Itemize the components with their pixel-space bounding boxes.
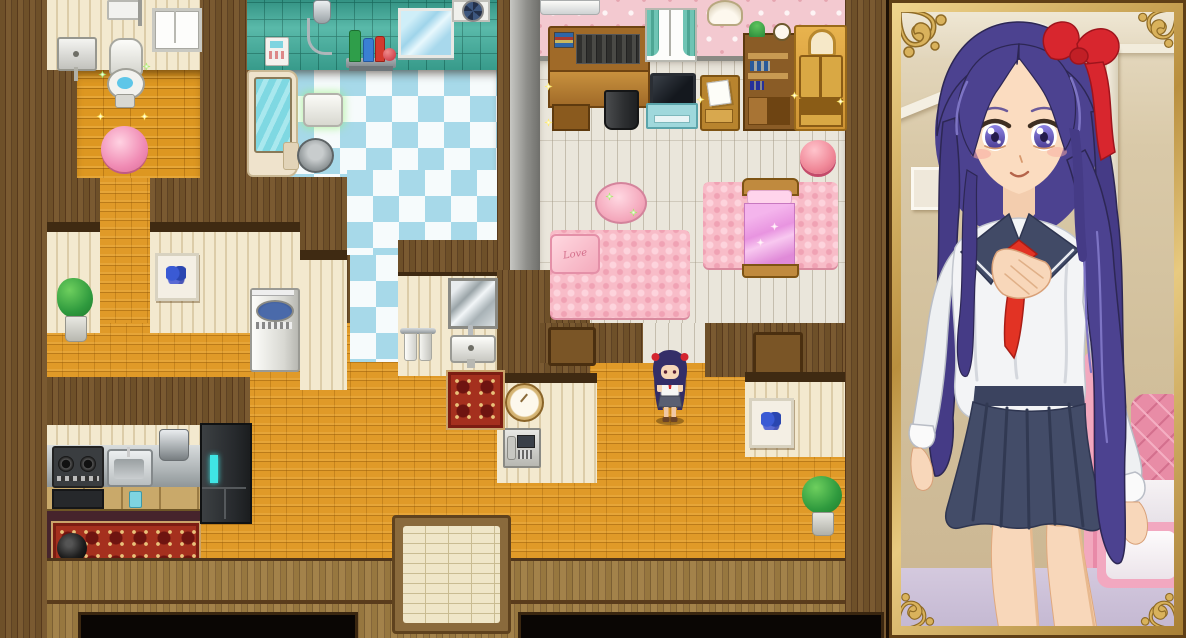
- window-mullion: [174, 11, 176, 43]
- blue-cup[interactable]: [129, 491, 142, 508]
- towel: [419, 333, 432, 361]
- doormat-weave: [403, 526, 500, 623]
- bookshelf[interactable]: [743, 33, 797, 131]
- curtain-left: [647, 10, 659, 56]
- hall-wall-column: [300, 250, 347, 390]
- small-red-rug: [448, 372, 503, 428]
- sparkle: [629, 208, 638, 217]
- potted-plant-left: [57, 278, 93, 342]
- game-screen: Love: [0, 0, 1186, 638]
- sink-leg: [74, 67, 78, 81]
- character-portrait-panel: [886, 0, 1186, 638]
- wall-sink[interactable]: [57, 37, 97, 71]
- shelf-plant: [749, 21, 765, 37]
- desk-hutch: [548, 26, 650, 74]
- small-wall-clock: [707, 0, 743, 26]
- sink-drain: [468, 345, 474, 351]
- sink-drain: [73, 51, 79, 57]
- stove-burner: [58, 456, 74, 472]
- bed-blanket: [744, 203, 795, 267]
- washer-lid: [256, 300, 294, 322]
- towel-rack: [400, 328, 438, 365]
- frame-ornament-top-right-icon: [1120, 12, 1174, 66]
- letter-desk[interactable]: [700, 75, 740, 131]
- fridge-divider: [224, 489, 226, 519]
- books-row: [576, 34, 640, 64]
- shelf-leg: [349, 66, 393, 71]
- bath-stool[interactable]: [303, 93, 343, 127]
- green-bottle[interactable]: [349, 30, 361, 62]
- butterfly-icon: [761, 412, 781, 430]
- love-pillow[interactable]: Love: [550, 234, 600, 274]
- bedroom-door-left[interactable]: [548, 327, 596, 366]
- intercom-keypad: [518, 450, 532, 459]
- faucet: [127, 447, 130, 457]
- bathroom-floor-strip: [350, 255, 400, 362]
- shower-hose: [307, 18, 332, 55]
- water-heater[interactable]: [107, 0, 141, 20]
- love-pillow-text: Love: [562, 247, 588, 261]
- entry-doormat: [392, 515, 511, 634]
- washroom-mirror: [448, 278, 498, 329]
- book-stack: [554, 32, 574, 48]
- bathtub[interactable]: [247, 70, 298, 177]
- portrait-scene: [901, 12, 1174, 626]
- gas-stove[interactable]: [52, 446, 104, 488]
- air-conditioner: [540, 0, 600, 15]
- washroom-north-wall: [398, 240, 497, 274]
- pink-pouf[interactable]: [800, 140, 836, 174]
- frame-ornament-bottom-right-icon: [1124, 576, 1174, 626]
- grey-partition: [510, 0, 540, 270]
- washer-top-edge: [252, 290, 294, 296]
- panel-buttons: [269, 51, 284, 59]
- hall-clock: [505, 383, 544, 422]
- intercom-handset: [507, 436, 516, 460]
- panel-screen: [270, 41, 283, 48]
- tv-shelf-slot: [654, 115, 690, 123]
- desk-drawer: [705, 109, 733, 123]
- intercom-phone[interactable]: [503, 428, 541, 468]
- washer-controls: [256, 322, 292, 329]
- plant-foliage: [57, 278, 93, 318]
- entry-opening-left[interactable]: [78, 612, 358, 638]
- curtained-window: [645, 8, 697, 62]
- player-sprite: [648, 348, 692, 426]
- map-view[interactable]: Love: [0, 0, 886, 638]
- plant-pot: [812, 512, 834, 536]
- shelf-drawers: [748, 97, 790, 125]
- bed-footboard: [742, 264, 799, 278]
- toilet-water: [117, 77, 133, 89]
- wardrobe-drawers: [799, 99, 843, 127]
- sparkle: [605, 192, 614, 201]
- intercom-screen: [517, 435, 535, 448]
- curtain-right: [683, 10, 695, 56]
- clock-hands: [520, 394, 528, 403]
- letter-paper: [706, 80, 731, 107]
- pink-bed[interactable]: [742, 178, 795, 276]
- golden-wardrobe[interactable]: [794, 25, 847, 131]
- toilet-base: [115, 94, 135, 108]
- shower-unit: [305, 0, 340, 55]
- stove-burner: [80, 456, 96, 472]
- butterfly-picture-right: [749, 398, 794, 448]
- entry-opening-right[interactable]: [518, 612, 884, 638]
- kitchen-room: [47, 425, 200, 577]
- wardrobe-doors: [799, 55, 843, 99]
- window-pane-divider: [669, 10, 671, 56]
- pink-round-rug: [101, 126, 148, 172]
- plant-pot: [65, 316, 87, 342]
- butterfly-picture-left: [155, 253, 199, 301]
- stove-controls: [57, 476, 99, 481]
- bath-mirror: [398, 8, 454, 58]
- fridge-light: [210, 455, 218, 483]
- frame-ornament-top-left-icon: [901, 12, 969, 80]
- sink-pedestal: [467, 359, 475, 368]
- kitchen-north-wall: [47, 377, 250, 425]
- window: [152, 8, 202, 52]
- plant-foliage: [802, 476, 842, 514]
- fan-blades: [462, 0, 484, 22]
- towel: [404, 333, 417, 361]
- corridor-floor: [100, 178, 150, 328]
- shampoo-shelf: [346, 30, 396, 72]
- shelf-books: [750, 81, 764, 90]
- cooking-pot[interactable]: [159, 429, 189, 461]
- ventilation-fan: [452, 0, 490, 22]
- trash-bin[interactable]: [604, 90, 639, 130]
- pink-dressing-table[interactable]: [595, 182, 647, 224]
- blue-bottle[interactable]: [363, 38, 374, 62]
- bath-control-panel[interactable]: [265, 37, 289, 66]
- potted-plant-right: [800, 476, 844, 536]
- shelf-row: [748, 73, 788, 79]
- tv-on-stand[interactable]: [646, 73, 694, 127]
- shelf-clock: [773, 23, 791, 41]
- red-soap-ball[interactable]: [383, 48, 396, 61]
- shelf-books: [750, 61, 770, 71]
- toilet[interactable]: [106, 38, 142, 108]
- girl-illustration: [901, 12, 1174, 626]
- frame-ornament-bottom-left-icon: [901, 576, 951, 626]
- washroom-sink[interactable]: [450, 325, 492, 368]
- butterfly-icon: [166, 266, 186, 284]
- refrigerator[interactable]: [200, 423, 252, 524]
- kitchen-sink[interactable]: [107, 449, 153, 487]
- bucket[interactable]: [297, 138, 334, 173]
- player-character[interactable]: [648, 348, 692, 426]
- wardrobe-clock: [808, 29, 836, 57]
- washing-machine[interactable]: [250, 288, 300, 372]
- desk-drawers: [552, 104, 590, 131]
- tv-stand: [646, 103, 698, 129]
- shelf-row: [748, 53, 788, 59]
- love-rug: Love: [550, 230, 690, 318]
- heater-pipe: [138, 0, 142, 26]
- sink-basin: [114, 459, 144, 479]
- oven-door: [52, 489, 104, 509]
